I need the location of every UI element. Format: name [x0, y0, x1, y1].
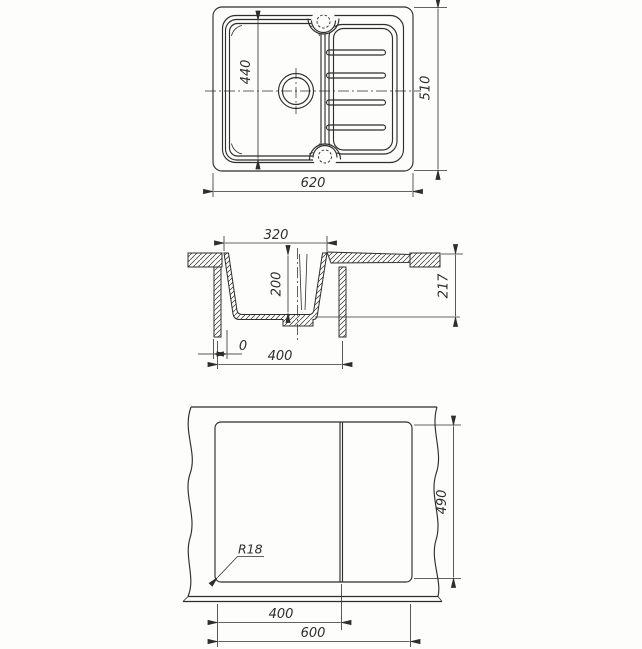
top-view: 440 510 620	[205, 7, 447, 197]
corner-radius-callout: R18	[218, 542, 264, 578]
sink-technical-drawing-page: 440 510 620	[0, 0, 642, 649]
bowl-outer	[226, 20, 326, 161]
countertop-right-section	[410, 253, 440, 267]
dim-label-217: 217	[437, 273, 452, 299]
cutout-template-view: R18 490 400 600	[183, 407, 461, 647]
drainboard-rib	[327, 125, 386, 130]
cabinet-panel-right	[339, 267, 346, 337]
worktop-break-left	[188, 407, 192, 597]
dim-label-490: 490	[435, 490, 450, 515]
section-view: 320 200 217 0 400	[188, 228, 463, 369]
rim-section	[327, 252, 410, 263]
cabinet-panel-left	[214, 267, 221, 337]
dim-label-510: 510	[419, 76, 434, 101]
dim-label-320: 320	[264, 228, 289, 243]
dim-label-400-section: 400	[268, 349, 293, 364]
dim-label-0: 0	[239, 339, 247, 354]
dim-label-r18: R18	[238, 542, 263, 557]
drain-cone-line	[305, 254, 307, 310]
dim-cutout-width: 600	[219, 604, 411, 647]
saddle-mask	[311, 9, 336, 34]
dim-label-440: 440	[239, 60, 254, 85]
dim-label-400-cutout: 400	[269, 607, 294, 622]
dim-label-620: 620	[301, 176, 326, 191]
drainboard-inner	[334, 29, 393, 151]
edge-join	[183, 597, 188, 602]
drainboard-rib	[327, 50, 386, 55]
countertop-left-section	[188, 253, 222, 267]
dim-label-600: 600	[301, 626, 326, 641]
dim-bowl-depth: 200	[270, 256, 289, 312]
dim-cabinet-width: 400	[218, 341, 343, 369]
dim-bowl-top-width: 320	[224, 228, 327, 251]
dim-label-200: 200	[270, 272, 285, 297]
edge-join	[438, 597, 442, 602]
drainboard-rib	[327, 73, 386, 78]
saddle-mask	[313, 144, 338, 169]
dim-overall-depth: 510	[414, 8, 447, 171]
drainboard-rib	[327, 100, 386, 105]
drain-cone-line	[300, 254, 302, 310]
bowl-corner-arc	[232, 26, 243, 37]
dim-front-offset: 0	[198, 330, 247, 359]
dim-bowl-inner-length: 440	[239, 22, 258, 159]
bowl-corner-arc	[232, 144, 243, 155]
dim-overall-width: 620	[213, 173, 413, 197]
technical-drawing-canvas: 440 510 620	[0, 0, 642, 649]
bowl-inner	[230, 24, 322, 157]
drainboard-outer	[329, 25, 397, 155]
cutout-opening	[215, 422, 412, 582]
